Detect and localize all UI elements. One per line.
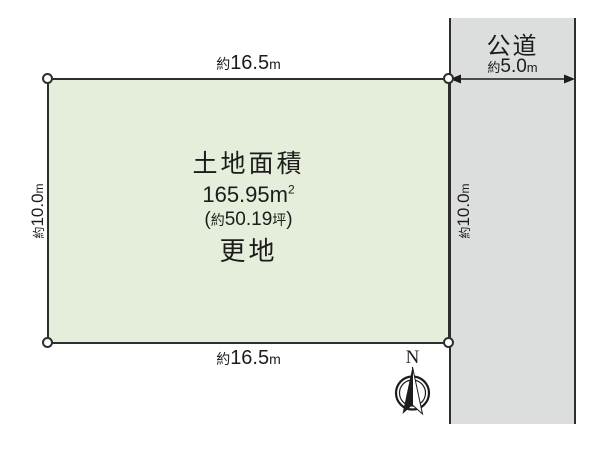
dimension-left-unit: m — [32, 183, 46, 193]
dimension-left: 約10.0m — [27, 141, 49, 281]
dimension-right: 約10.0m — [453, 141, 475, 281]
land-plot-diagram: 約16.5m 約16.5m 約10.0m 約10.0m 公道 約5.0m 土地面… — [0, 0, 600, 450]
plot-info-block: 土地面積 165.95m2 (約50.19坪) 更地 — [47, 150, 450, 267]
area-m2-number: 165.95 — [202, 182, 269, 207]
dimension-top-value: 16.5 — [230, 52, 269, 74]
dimension-left-prefix: 約 — [32, 227, 46, 239]
area-square-meters: 165.95m2 — [47, 182, 450, 207]
dimension-bottom-prefix: 約 — [216, 351, 230, 367]
dimension-right-unit: m — [458, 183, 472, 193]
corner-marker-bottom-left — [42, 337, 53, 348]
dimension-bottom-unit: m — [269, 351, 281, 367]
area-tsubo: (約50.19坪) — [47, 209, 450, 231]
dimension-top-unit: m — [269, 56, 281, 72]
road-width-value: 5.0 — [500, 56, 526, 77]
area-title: 土地面積 — [47, 150, 450, 179]
road-width-unit: m — [527, 60, 538, 75]
dimension-left-value: 10.0 — [28, 193, 47, 226]
north-compass-icon: N — [390, 344, 436, 422]
corner-marker-top-left — [42, 73, 53, 84]
dimension-top-prefix: 約 — [216, 56, 230, 72]
compass-north-letter: N — [406, 347, 420, 368]
tsubo-paren-close: ) — [286, 209, 292, 230]
corner-marker-bottom-right — [443, 337, 454, 348]
area-m2-sup: 2 — [288, 182, 295, 196]
dimension-right-value: 10.0 — [454, 193, 473, 226]
road-width-prefix: 約 — [487, 60, 500, 75]
tsubo-prefix: 約 — [211, 212, 225, 228]
area-m2-unit: m — [270, 182, 288, 207]
dimension-top: 約16.5m — [47, 52, 450, 75]
land-status-label: 更地 — [47, 237, 450, 267]
tsubo-value: 50.19 — [225, 209, 273, 230]
dimension-right-prefix: 約 — [458, 227, 472, 239]
tsubo-unit: 坪 — [272, 212, 286, 228]
dimension-bottom-value: 16.5 — [230, 347, 269, 369]
road-width-label: 約5.0m — [449, 56, 576, 78]
corner-marker-top-right — [443, 73, 454, 84]
